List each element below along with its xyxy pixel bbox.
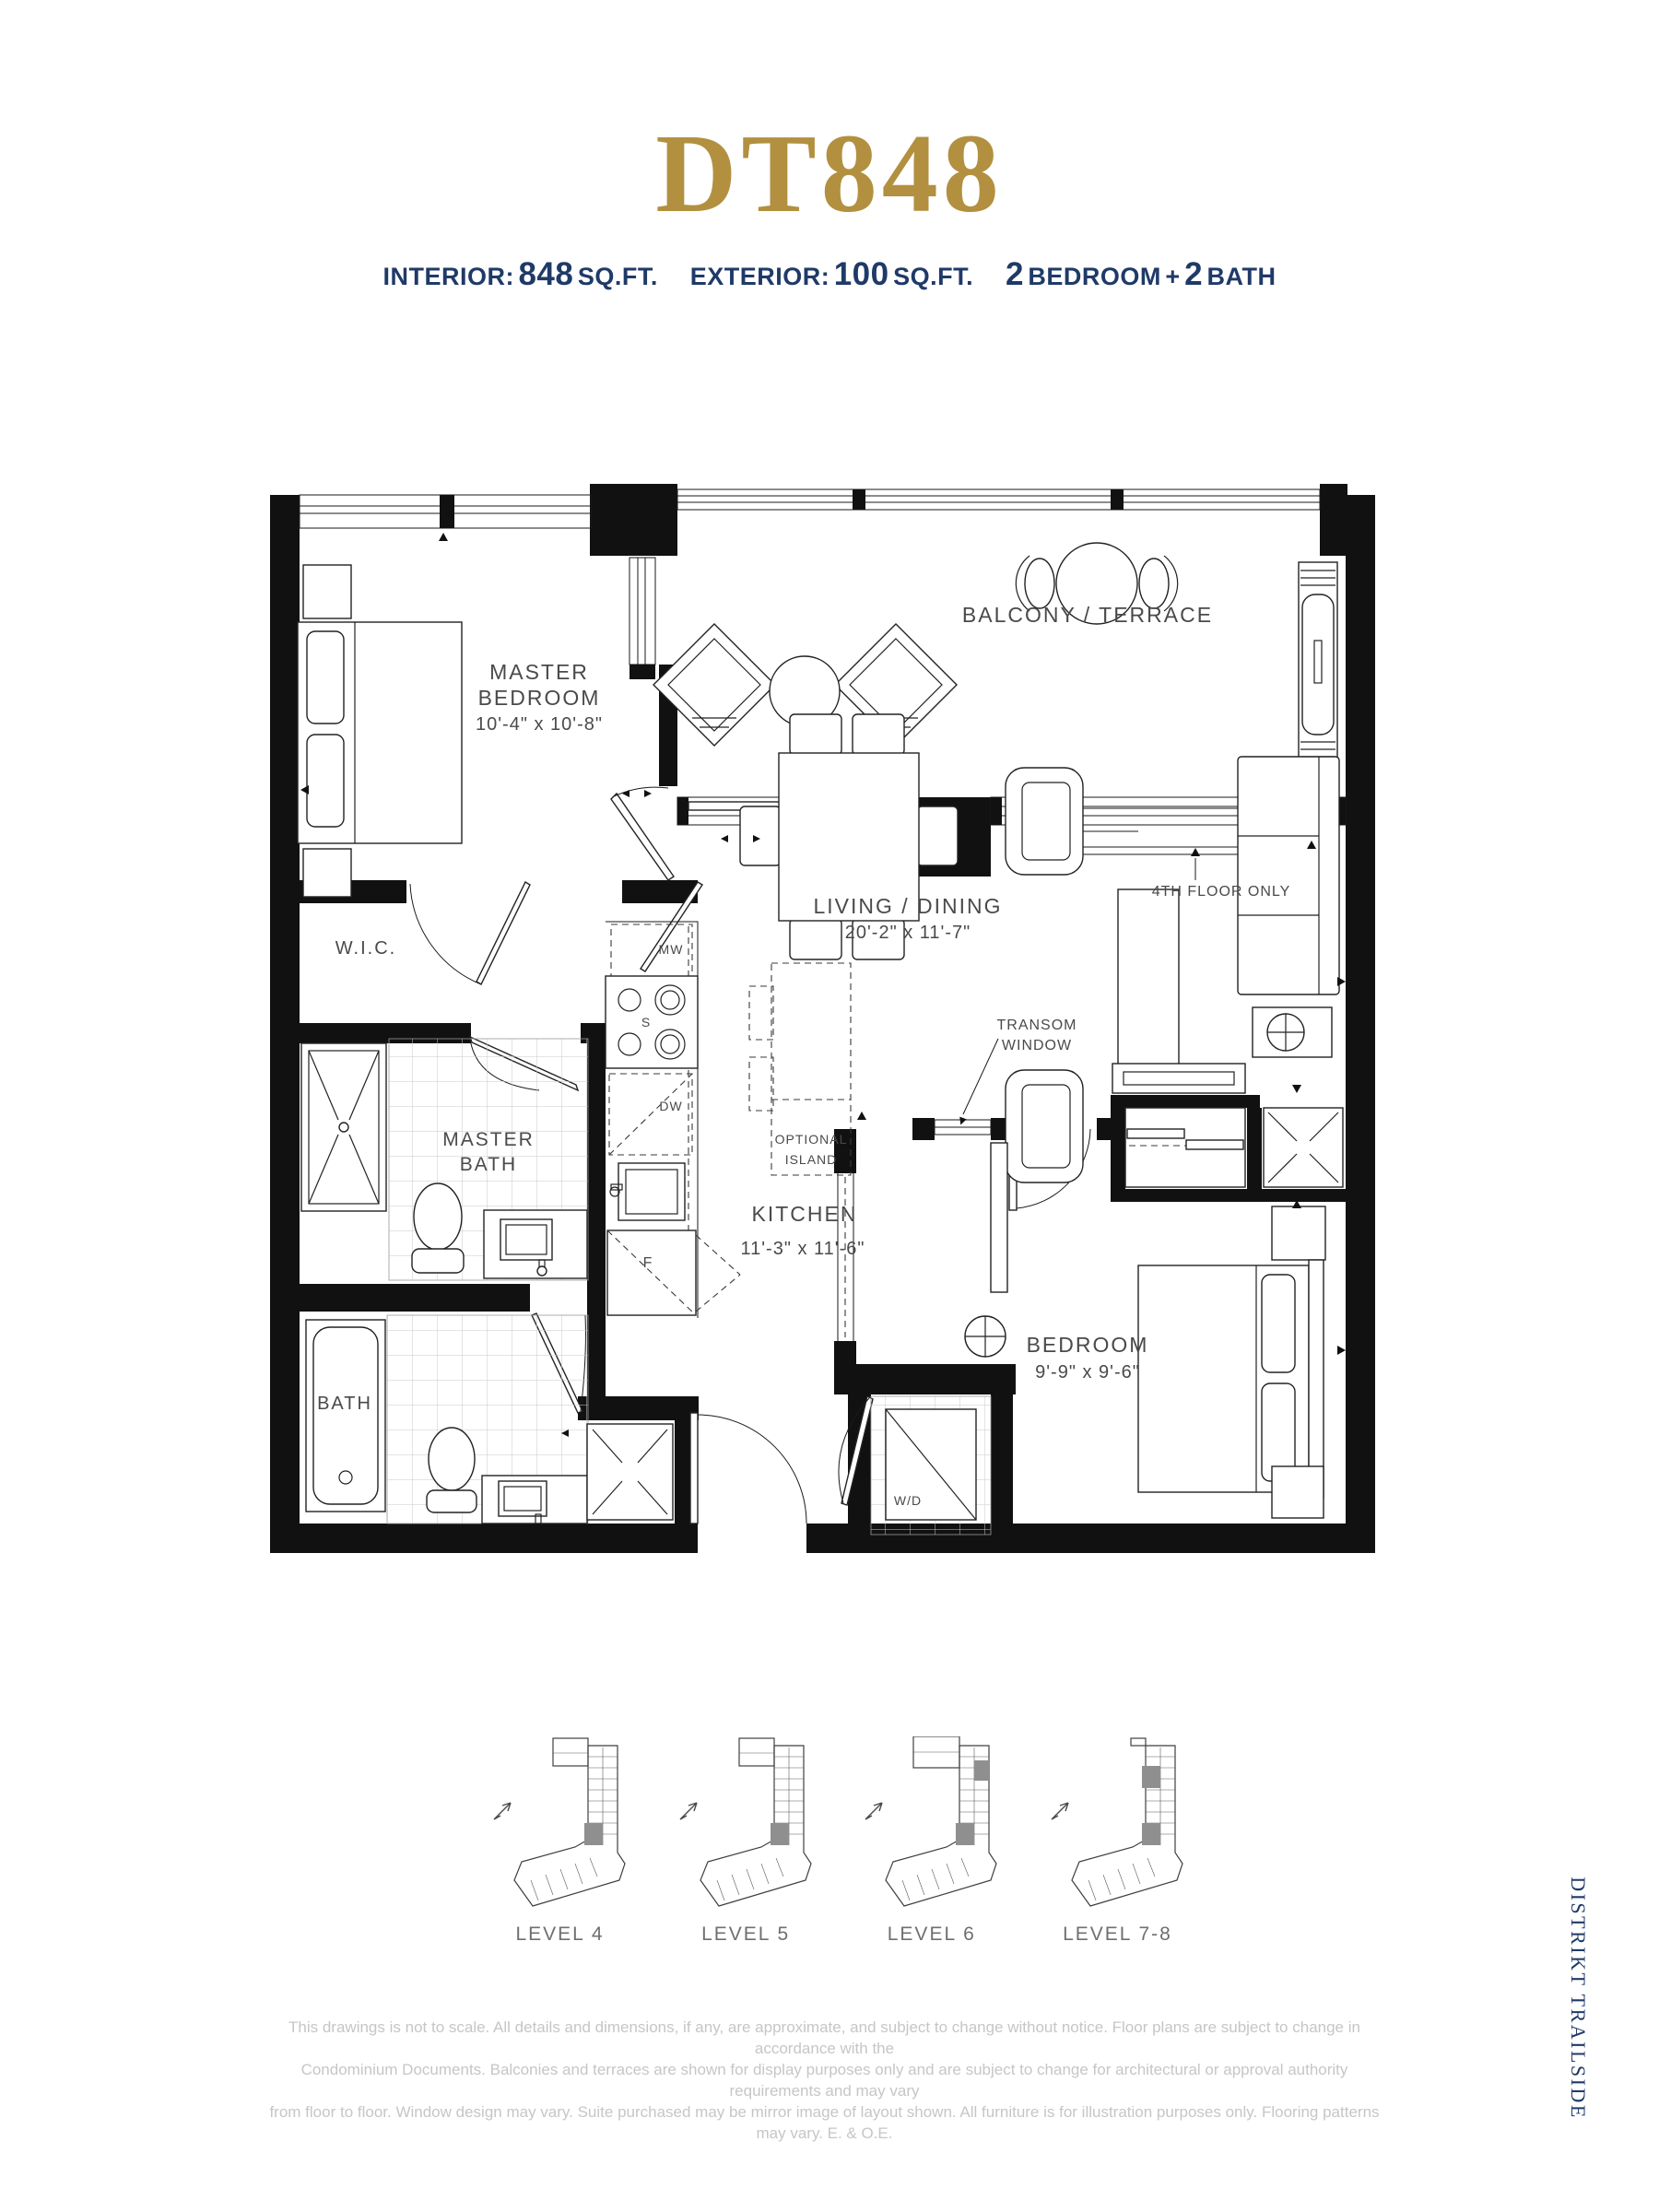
unit-highlight	[584, 1823, 603, 1845]
interior-unit: SQ.FT.	[578, 263, 658, 290]
suite-specs: INTERIOR: 848 SQ.FT. EXTERIOR: 100 SQ.FT…	[0, 256, 1659, 293]
label-fridge: F	[643, 1255, 653, 1271]
label-wic: W.I.C.	[335, 938, 396, 959]
floor-plan-container: MASTER BEDROOM 10'-4" x 10'-8" BALCONY /…	[263, 484, 1382, 1567]
bedroom-furniture	[1138, 1206, 1325, 1518]
unit-highlight	[1142, 1823, 1160, 1845]
label-mw: MW	[659, 942, 684, 957]
keyplan-level-4-label: LEVEL 4	[479, 1924, 641, 1946]
bedroom-label: BEDROOM	[1028, 263, 1161, 290]
disclaimer-line-2: Condominium Documents. Balconies and ter…	[265, 2059, 1384, 2101]
label-master-bedroom-1: MASTER	[489, 660, 589, 684]
bedroom-count: 2	[1006, 256, 1024, 292]
bath-count: 2	[1184, 256, 1203, 292]
label-dw: DW	[659, 1099, 682, 1113]
north-arrow-icon	[865, 1803, 882, 1819]
keyplan-level-6: LEVEL 6	[851, 1736, 1012, 1948]
interior-value: 848	[518, 256, 573, 292]
label-island-1: OPTIONAL	[775, 1132, 848, 1147]
balcony-furniture	[653, 543, 1337, 765]
keyplan-level-6-diagram	[851, 1736, 1012, 1913]
master-bed-group	[298, 565, 462, 897]
label-fourth-floor: 4TH FLOOR ONLY	[1152, 884, 1291, 900]
keyplan-level-5-label: LEVEL 5	[665, 1924, 827, 1946]
label-master-bedroom-dims: 10'-4" x 10'-8"	[476, 714, 603, 735]
label-master-bath-1: MASTER	[442, 1129, 535, 1150]
label-bath: BATH	[317, 1394, 372, 1414]
exterior-unit: SQ.FT.	[893, 263, 973, 290]
keyplan-strip: LEVEL 4	[479, 1736, 1198, 1948]
unit-highlight	[771, 1823, 789, 1845]
page-title: DT848	[0, 118, 1659, 230]
label-transom-1: TRANSOM	[997, 1018, 1077, 1033]
brand-vertical-text: DISTRIKT TRAILSIDE	[1566, 1877, 1590, 2120]
label-living-dining-dims: 20'-2" x 11'-7"	[845, 923, 971, 943]
label-bedroom: BEDROOM	[1027, 1333, 1149, 1357]
living-dining-furniture	[740, 714, 1339, 1357]
label-kitchen-dims: 11'-3" x 11'-6"	[740, 1239, 865, 1259]
label-island-2: ISLAND	[785, 1152, 838, 1167]
keyplan-level-5: LEVEL 5	[665, 1736, 827, 1948]
exterior-label: EXTERIOR:	[690, 263, 830, 290]
keyplan-level-4: LEVEL 4	[479, 1736, 641, 1948]
north-arrow-icon	[494, 1803, 511, 1819]
label-kitchen: KITCHEN	[752, 1202, 858, 1226]
floor-plan: MASTER BEDROOM 10'-4" x 10'-8" BALCONY /…	[263, 484, 1382, 1567]
north-arrow-icon	[680, 1803, 697, 1819]
bath-label: BATH	[1207, 263, 1277, 290]
north-arrow-icon	[1052, 1803, 1068, 1819]
keyplan-level-7-8-diagram	[1037, 1736, 1198, 1913]
label-living-dining: LIVING / DINING	[813, 894, 1002, 918]
unit-highlight	[956, 1823, 974, 1845]
keyplan-level-6-label: LEVEL 6	[851, 1924, 1012, 1946]
interior-label: INTERIOR:	[383, 263, 515, 290]
label-wd: W/D	[894, 1493, 922, 1508]
label-bedroom-dims: 9'-9" x 9'-6"	[1035, 1362, 1140, 1382]
label-master-bedroom-2: BEDROOM	[478, 686, 601, 710]
unit-highlight	[974, 1760, 989, 1781]
label-transom-2: WINDOW	[1002, 1038, 1072, 1053]
disclaimer: This drawings is not to scale. All detai…	[265, 2017, 1384, 2144]
exterior-value: 100	[834, 256, 889, 292]
keyplan-level-5-diagram	[665, 1736, 827, 1913]
plus-sign: +	[1165, 263, 1180, 290]
disclaimer-line-3: from floor to floor. Window design may v…	[265, 2101, 1384, 2144]
keyplan-level-7-8: LEVEL 7-8	[1037, 1736, 1198, 1948]
unit-highlight	[1142, 1766, 1160, 1788]
disclaimer-line-1: This drawings is not to scale. All detai…	[265, 2017, 1384, 2059]
keyplan-level-7-8-label: LEVEL 7-8	[1037, 1924, 1198, 1946]
label-stove: S	[641, 1015, 651, 1030]
label-balcony: BALCONY / TERRACE	[962, 603, 1213, 627]
label-master-bath-2: BATH	[460, 1154, 517, 1175]
keyplan-level-4-diagram	[479, 1736, 641, 1913]
